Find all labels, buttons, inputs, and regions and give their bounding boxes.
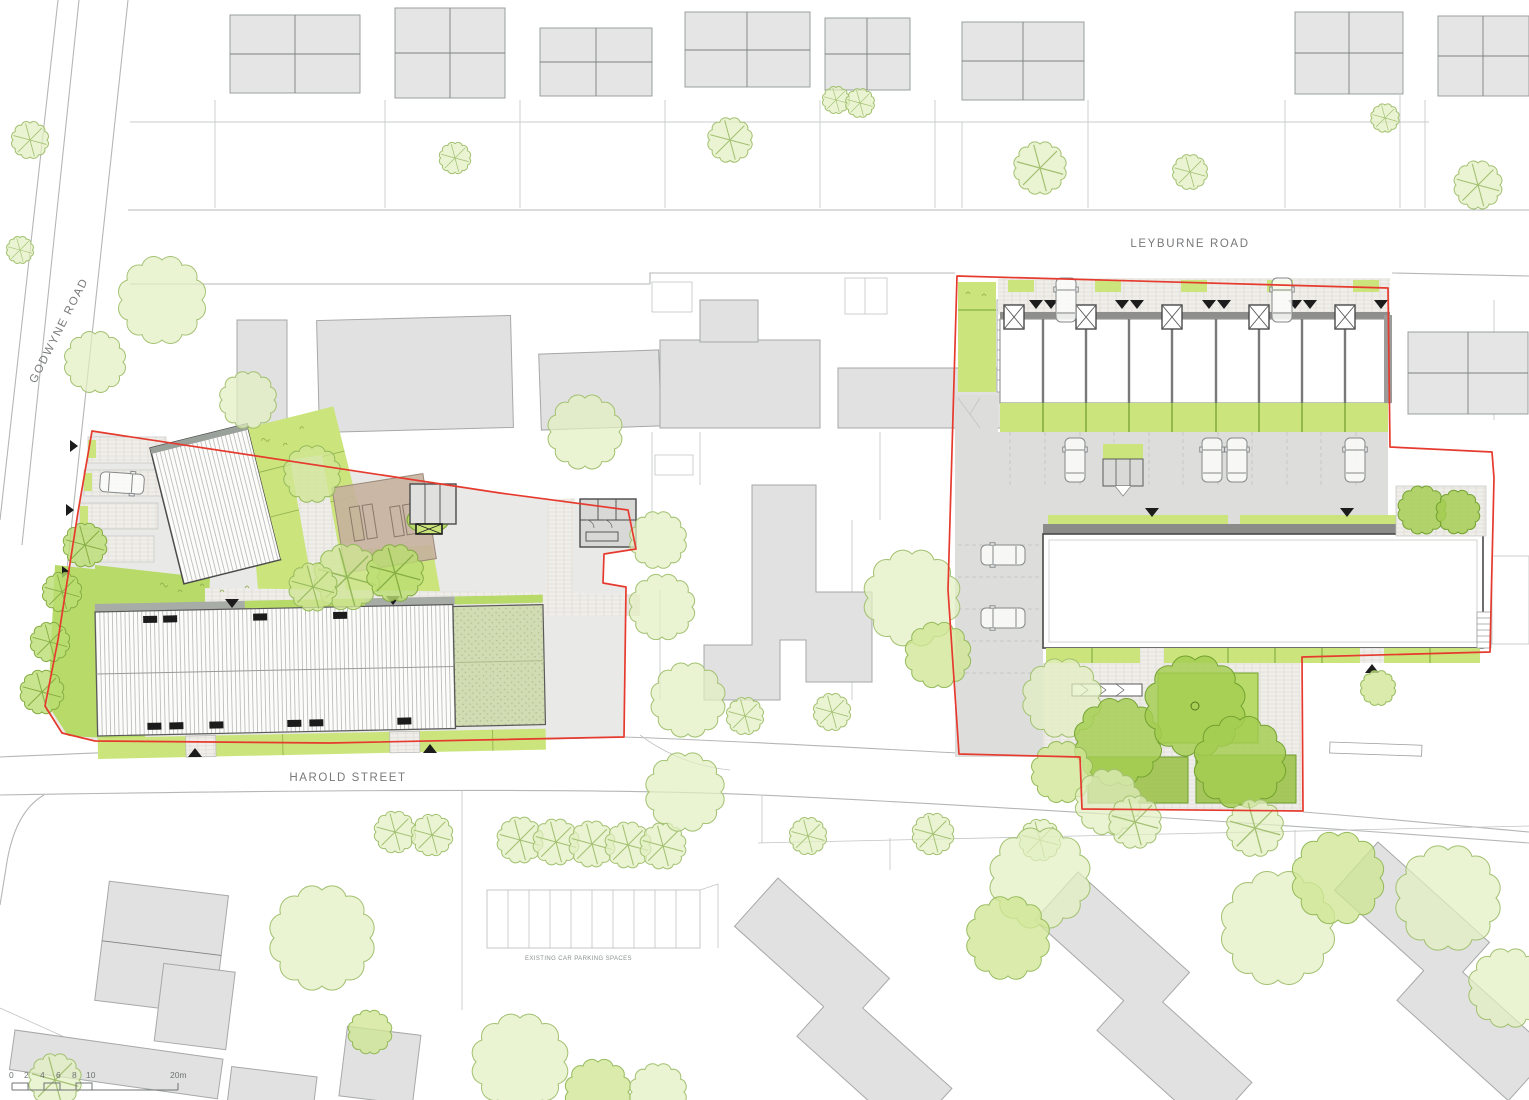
site-left-binstore [580,499,636,547]
scale-tick-6: 6 [56,1070,61,1080]
parked-car [1343,438,1367,482]
scale-tick-2: 2 [24,1070,29,1080]
parked-car [1225,438,1249,482]
scale-tick-4: 4 [40,1070,45,1080]
scale-tick-10: 10 [86,1070,96,1080]
parked-car [1200,438,1224,482]
parked-car [981,543,1025,567]
site-plan-drawing: LEYBURNE ROAD HAROLD STREET GODWYNE ROAD… [0,0,1529,1100]
terrace-row [998,278,1392,432]
context-houses-north [230,8,1529,100]
stair-east [1477,612,1491,648]
parked-car [1054,278,1078,322]
label-existing-parking: EXISTING CAR PARKING SPACES [525,956,632,962]
scale-label-20m: 20m [170,1070,187,1080]
parked-car [981,606,1025,630]
label-leyburne-road: LEYBURNE ROAD [1130,238,1249,250]
label-harold-street: HAROLD STREET [289,772,406,784]
site-left-building-south [95,595,546,759]
scale-tick-0: 0 [9,1070,14,1080]
context-garden-fences [130,100,1429,208]
site-plan-page: LEYBURNE ROAD HAROLD STREET GODWYNE ROAD… [0,0,1529,1100]
parked-car [1063,438,1087,482]
scale-tick-8: 8 [72,1070,77,1080]
